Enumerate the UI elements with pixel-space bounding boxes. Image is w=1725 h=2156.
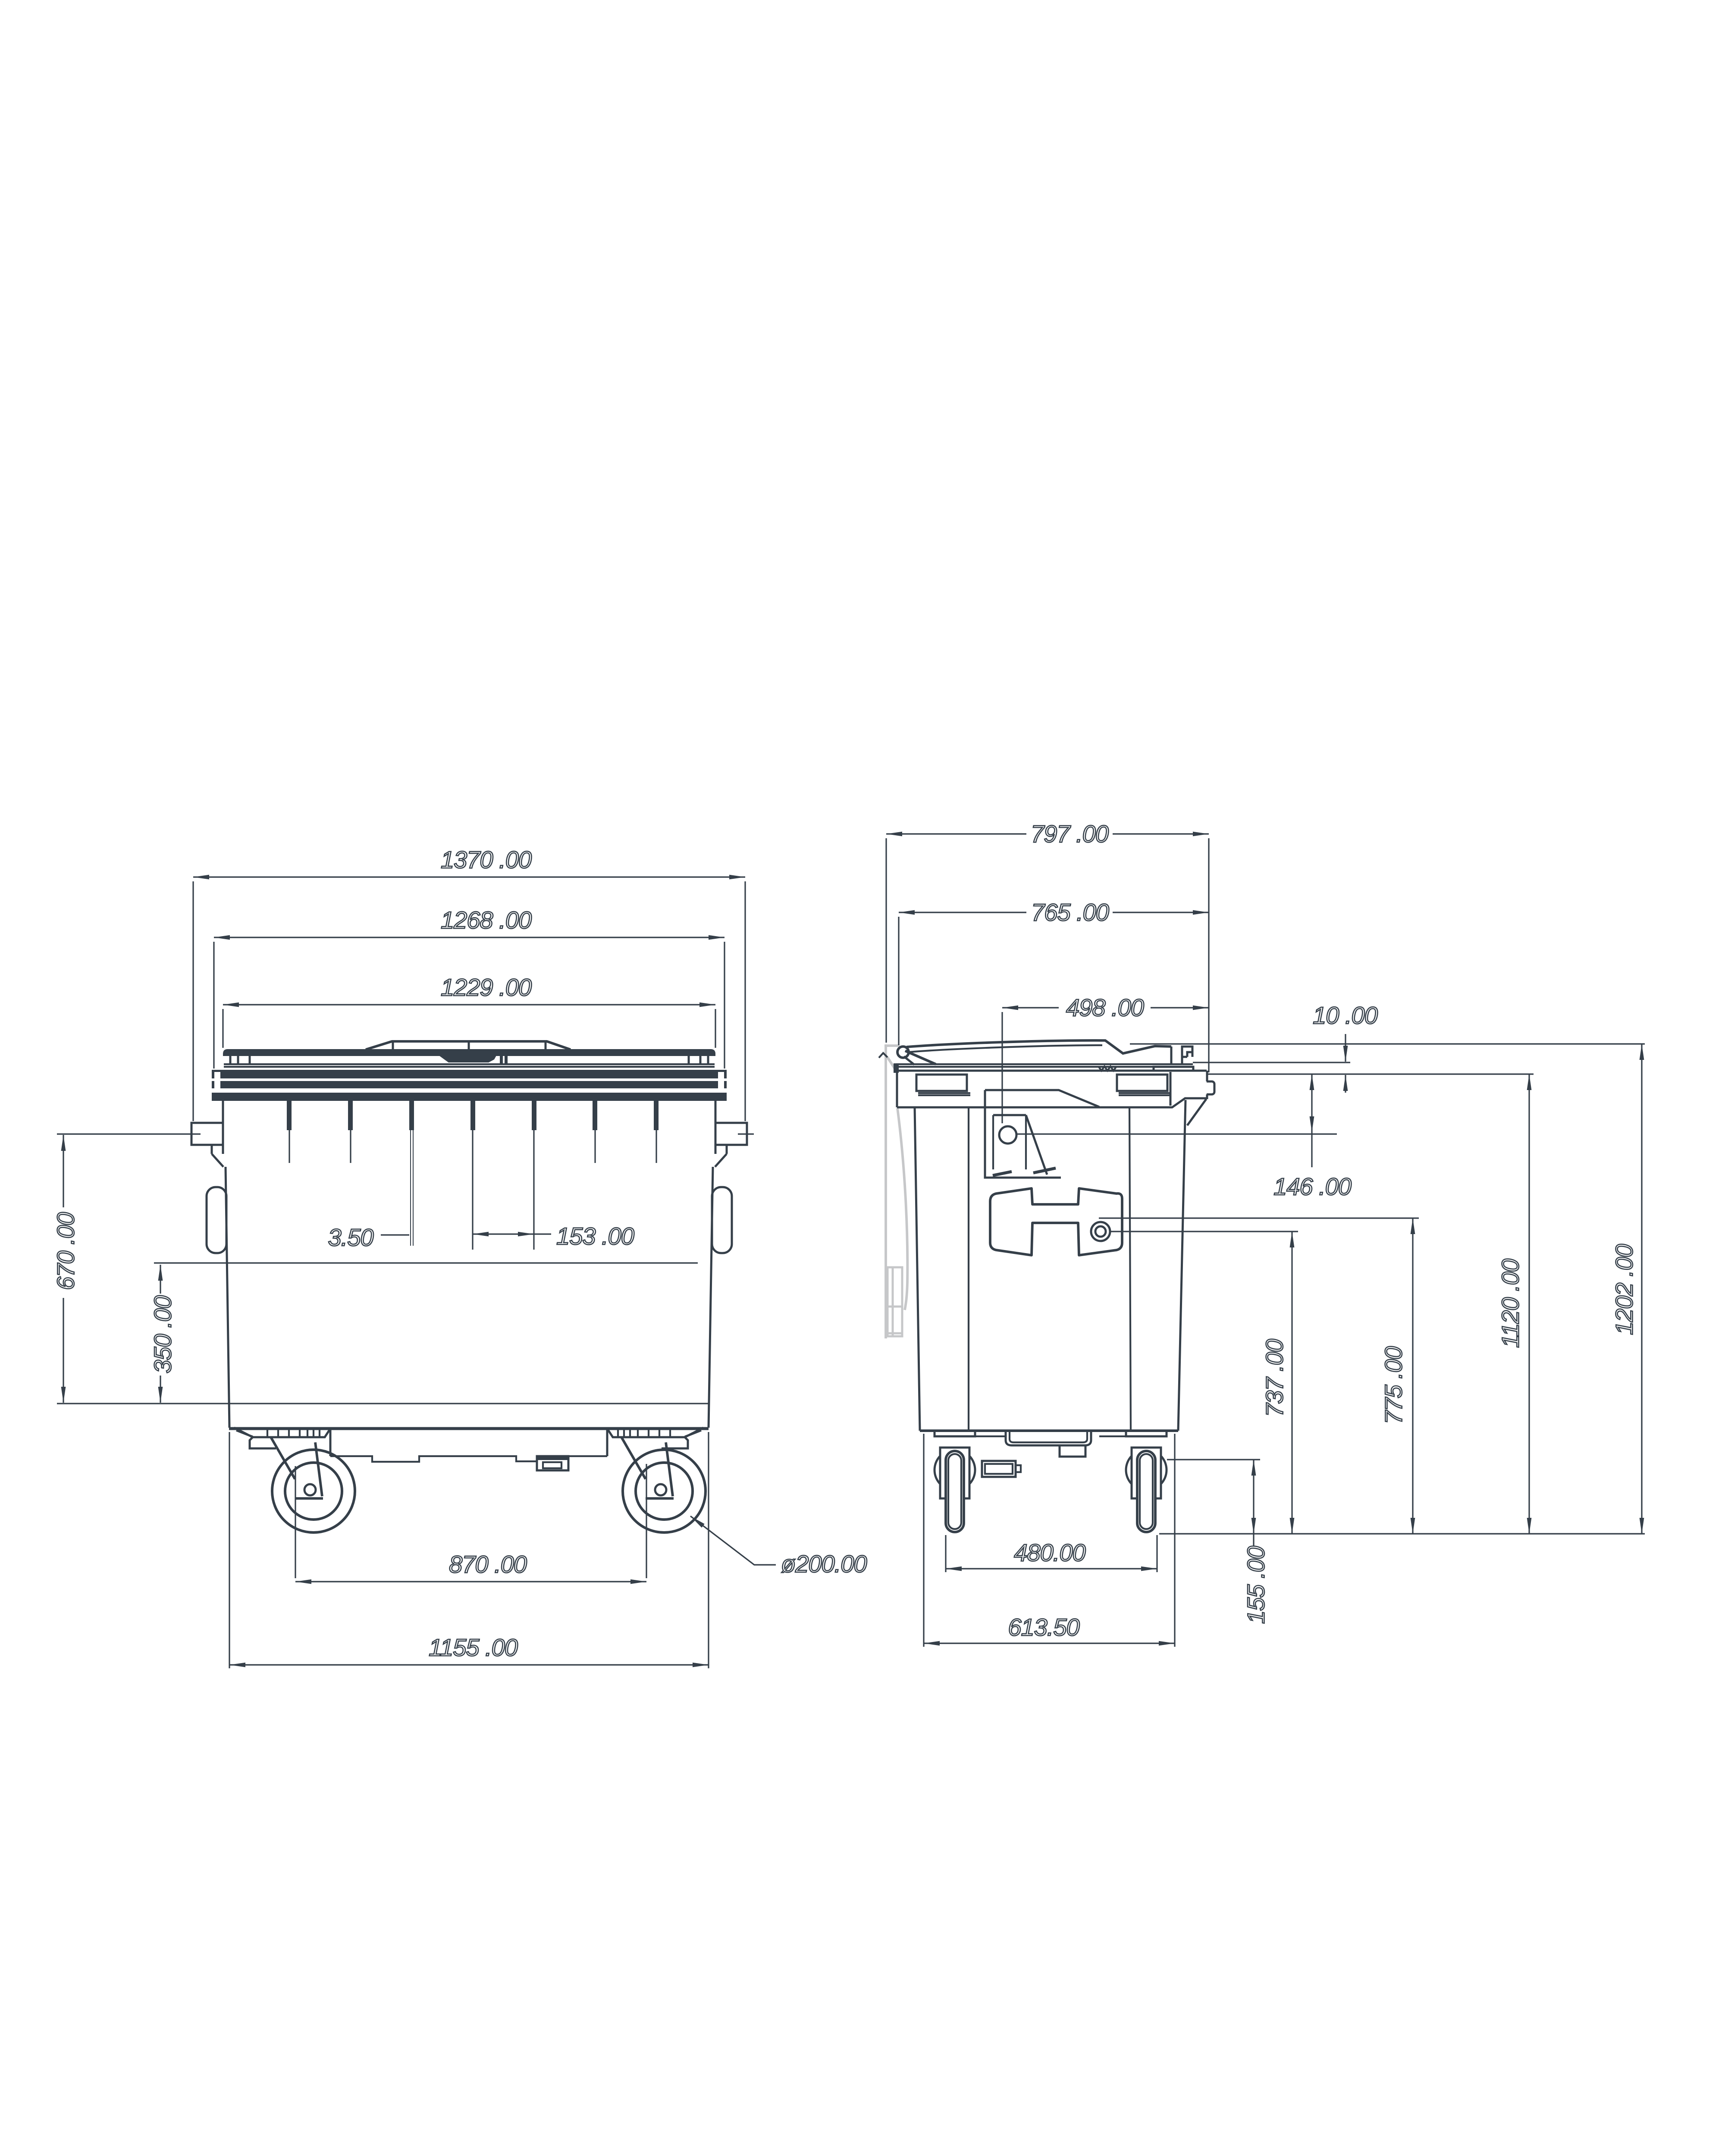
svg-text:155 .00: 155 .00	[1242, 1546, 1270, 1624]
svg-text:10 .00: 10 .00	[1313, 1002, 1378, 1029]
svg-text:613.50: 613.50	[1008, 1614, 1079, 1641]
svg-text:1120 .00: 1120 .00	[1497, 1259, 1524, 1348]
svg-text:350 .00: 350 .00	[149, 1295, 176, 1373]
svg-text:498 .00: 498 .00	[1066, 994, 1144, 1021]
svg-text:480.00: 480.00	[1014, 1539, 1085, 1566]
svg-text:670 .00: 670 .00	[52, 1212, 79, 1290]
svg-text:153 .00: 153 .00	[556, 1222, 634, 1250]
svg-text:3.50: 3.50	[328, 1224, 374, 1251]
svg-text:775 .00: 775 .00	[1380, 1346, 1407, 1424]
svg-text:1229 .00: 1229 .00	[441, 974, 532, 1001]
svg-text:1268 .00: 1268 .00	[441, 906, 532, 934]
svg-text:797 .00: 797 .00	[1031, 820, 1109, 847]
svg-text:1370 .00: 1370 .00	[441, 846, 532, 873]
svg-text:870 .00: 870 .00	[449, 1551, 527, 1578]
svg-text:146 .00: 146 .00	[1273, 1173, 1352, 1200]
svg-text:1202 .00: 1202 .00	[1611, 1244, 1638, 1335]
svg-text:765 .00: 765 .00	[1031, 899, 1109, 926]
svg-text:1155 .00: 1155 .00	[429, 1634, 518, 1661]
svg-text:ø200.00: ø200.00	[781, 1550, 867, 1577]
svg-text:737 .00: 737 .00	[1261, 1339, 1288, 1417]
